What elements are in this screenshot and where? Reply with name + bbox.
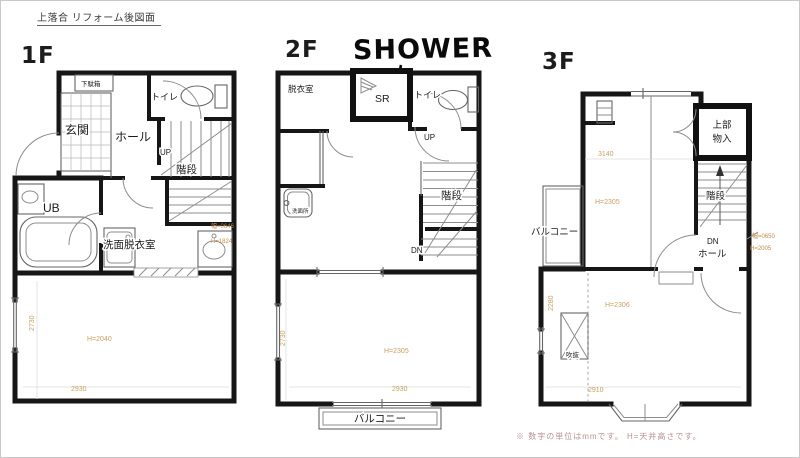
floor-plan-3f: 上部 物入 階段 DN ホール バルコニー 吹抜 3140 H=2305 H=2… xyxy=(529,83,791,433)
room-label-hall-3f: ホール xyxy=(698,249,727,260)
room-label-balcony-2f: バルコニー xyxy=(354,413,406,425)
partition-glass xyxy=(320,131,323,184)
dim-depth-1f: 2730 xyxy=(29,315,36,331)
bay-window xyxy=(609,404,682,421)
dimension-lines-1f xyxy=(23,281,229,399)
room-label-hall-1f: ホール xyxy=(115,130,151,144)
room-label-toilet-1f: トイレ xyxy=(151,92,178,102)
closet-shelves xyxy=(597,101,612,123)
room-label-shower-room: SR xyxy=(375,93,390,105)
room-label-balcony-3f: バルコニー xyxy=(531,227,578,238)
label-up-1f: UP xyxy=(160,148,171,157)
dim-ceiling-2f: H=2305 xyxy=(384,348,409,355)
room-label-storage-line1: 上部 xyxy=(712,119,731,131)
room-label-entrance: 玄関 xyxy=(65,122,89,137)
note-door-height-3f: H=2005 xyxy=(750,246,772,252)
dim-lower-width: 2910 xyxy=(588,387,604,394)
dim-depth-2f: 2730 xyxy=(280,330,287,346)
room-label-stairs-1f: 階段 xyxy=(176,163,197,176)
document-title: 上落合 リフォーム後図面 xyxy=(37,9,161,26)
dim-lower-ceiling: H=2306 xyxy=(605,302,630,309)
storage-doors xyxy=(673,109,696,156)
balcony-3f xyxy=(543,186,583,266)
room-label-bath: UB xyxy=(43,201,60,215)
note-door-width-1f: 幅=0646 xyxy=(211,222,235,230)
window-top-2f xyxy=(317,267,383,277)
window-left-1f xyxy=(11,298,19,352)
room-label-washroom-1f: 洗面脱衣室 xyxy=(103,238,156,251)
footnote: ※ 数字の単位はmmです。 H=天井高さです。 xyxy=(516,431,702,442)
bathtub-icon xyxy=(18,184,101,267)
dimension-lines-2f xyxy=(286,279,471,400)
floor-plan-2f: 脱衣室 SR トイレ 洗面所 UP 階段 DN バルコニー H=2305 293… xyxy=(269,31,487,436)
dim-upper-ceiling: H=2305 xyxy=(595,199,620,206)
room-label-toilet-2f: トイレ xyxy=(414,90,441,100)
room-label-shoe-cabinet: 下駄箱 xyxy=(81,79,101,88)
label-wash-corner: 洗面所 xyxy=(292,207,309,215)
floorplan-document: 上落合 リフォーム後図面 1F 2F 3F SHOWER xyxy=(0,0,800,458)
dim-width-2f: 2930 xyxy=(392,386,408,393)
dim-ceiling-1f: H=2040 xyxy=(87,336,112,343)
note-door-height-1f: H=1824 xyxy=(211,239,233,245)
dim-depth-3f: 2280 xyxy=(548,295,555,311)
room-label-stairs-2f: 階段 xyxy=(441,189,462,202)
floor-plan-1f: 下駄箱 玄関 ホール トイレ UP 階段 UB 洗面脱衣室 H=2040 293… xyxy=(9,63,254,408)
opening-hatch xyxy=(134,268,198,277)
label-dn-3f: DN xyxy=(707,237,719,246)
entry-door-arc xyxy=(16,133,59,176)
label-up-2f: UP xyxy=(424,133,435,142)
dim-width-1f: 2930 xyxy=(71,386,87,393)
walls-2f xyxy=(278,71,479,404)
room-label-stairs-3f: 階段 xyxy=(706,190,726,202)
upper-storage-box xyxy=(696,106,749,158)
note-door-width-3f: 幅=0650 xyxy=(752,232,776,240)
floor-label-3f: 3F xyxy=(542,49,576,75)
label-void: 吹抜 xyxy=(566,350,580,359)
label-dn-2f: DN xyxy=(411,246,423,255)
doors-3f xyxy=(654,235,741,313)
room-label-dressing: 脱衣室 xyxy=(288,84,314,94)
void-box xyxy=(561,273,588,401)
window-top-3f xyxy=(631,88,691,99)
dim-upper-width: 3140 xyxy=(598,151,614,158)
room-label-storage-line2: 物入 xyxy=(712,133,732,145)
stairs-treads-2f xyxy=(421,163,478,257)
